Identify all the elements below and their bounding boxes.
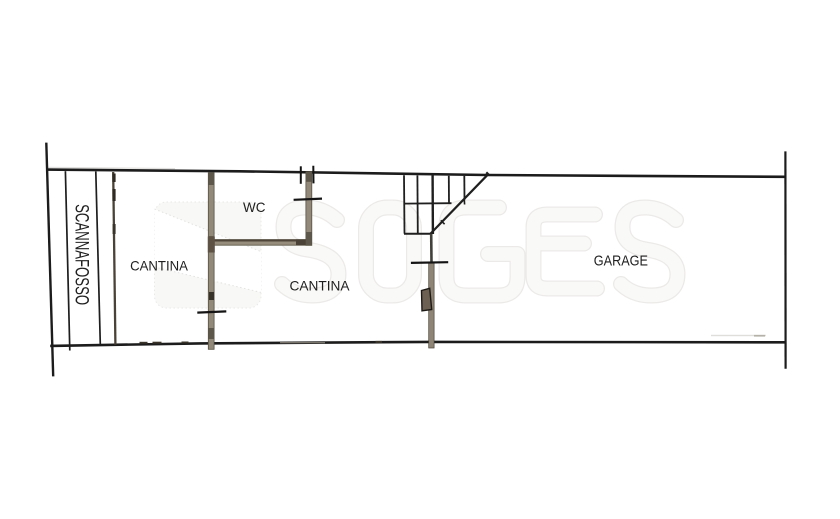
svg-text:CANTINA: CANTINA xyxy=(290,278,351,294)
svg-text:CANTINA: CANTINA xyxy=(130,257,188,273)
svg-text:WC: WC xyxy=(243,199,265,215)
svg-text:GARAGE: GARAGE xyxy=(594,254,648,270)
svg-text:SCANNAFOSSO: SCANNAFOSSO xyxy=(71,204,92,305)
